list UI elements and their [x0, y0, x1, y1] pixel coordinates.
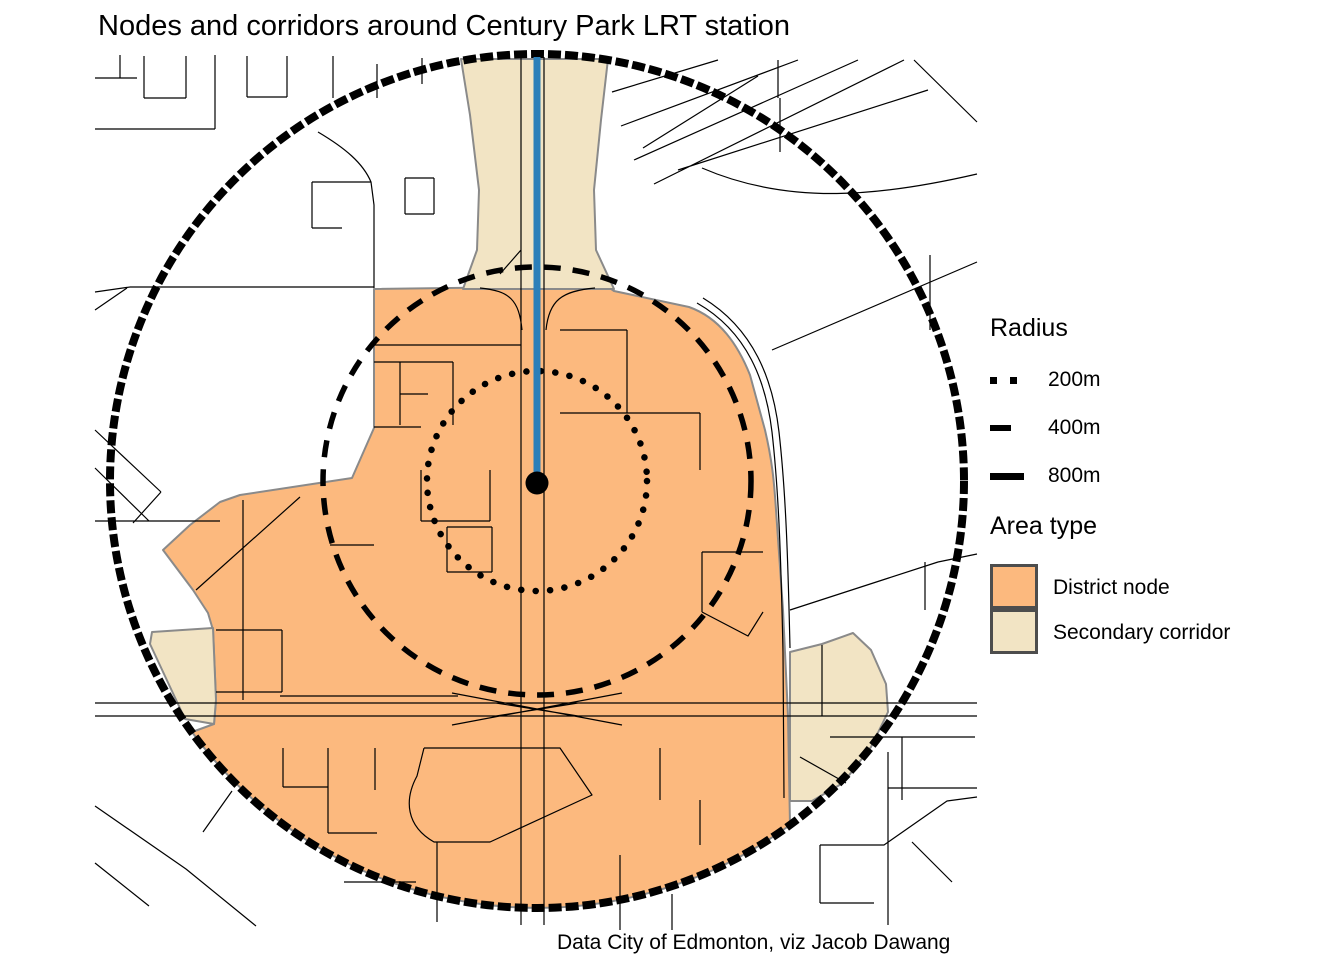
station-marker [526, 472, 549, 495]
legend-item-label: Secondary corridor [1038, 621, 1230, 645]
streets-east-gap [772, 255, 977, 610]
streets-top-right [612, 60, 977, 194]
legend-area-type: Area type District node Secondary corrid… [990, 512, 1320, 655]
secondary-corridor-swatch [990, 609, 1038, 654]
dotted-line-key-icon [990, 377, 1048, 384]
legend-item-800m: 800m [990, 463, 1320, 489]
secondary-corridor-east [790, 633, 888, 801]
map-figure: Nodes and corridors around Century Park … [0, 0, 1344, 960]
legend-item-label: District node [1038, 576, 1170, 600]
legend-item-secondary-corridor: Secondary corridor [990, 610, 1320, 655]
legend-item-label: 400m [1048, 416, 1101, 440]
legend-radius: Radius 200m 400m 800m [990, 314, 1320, 511]
legend-radius-title: Radius [990, 314, 1320, 343]
legend-item-400m: 400m [990, 415, 1320, 441]
dashed-line-key-icon [990, 425, 1048, 431]
district-node-swatch [990, 564, 1038, 609]
page-title: Nodes and corridors around Century Park … [98, 10, 790, 43]
legend-area-title: Area type [990, 512, 1320, 541]
legend-item-label: 800m [1048, 464, 1101, 488]
legend-item-label: 200m [1048, 368, 1101, 392]
data-credit-caption: Data City of Edmonton, viz Jacob Dawang [557, 931, 950, 955]
legend-item-district-node: District node [990, 565, 1320, 610]
solid-line-key-icon [990, 473, 1048, 480]
streets-south-west-outer [95, 791, 256, 926]
legend-item-200m: 200m [990, 367, 1320, 393]
secondary-corridor-west [150, 628, 216, 724]
streets-top-left [95, 55, 434, 292]
district-node-area [163, 286, 790, 908]
